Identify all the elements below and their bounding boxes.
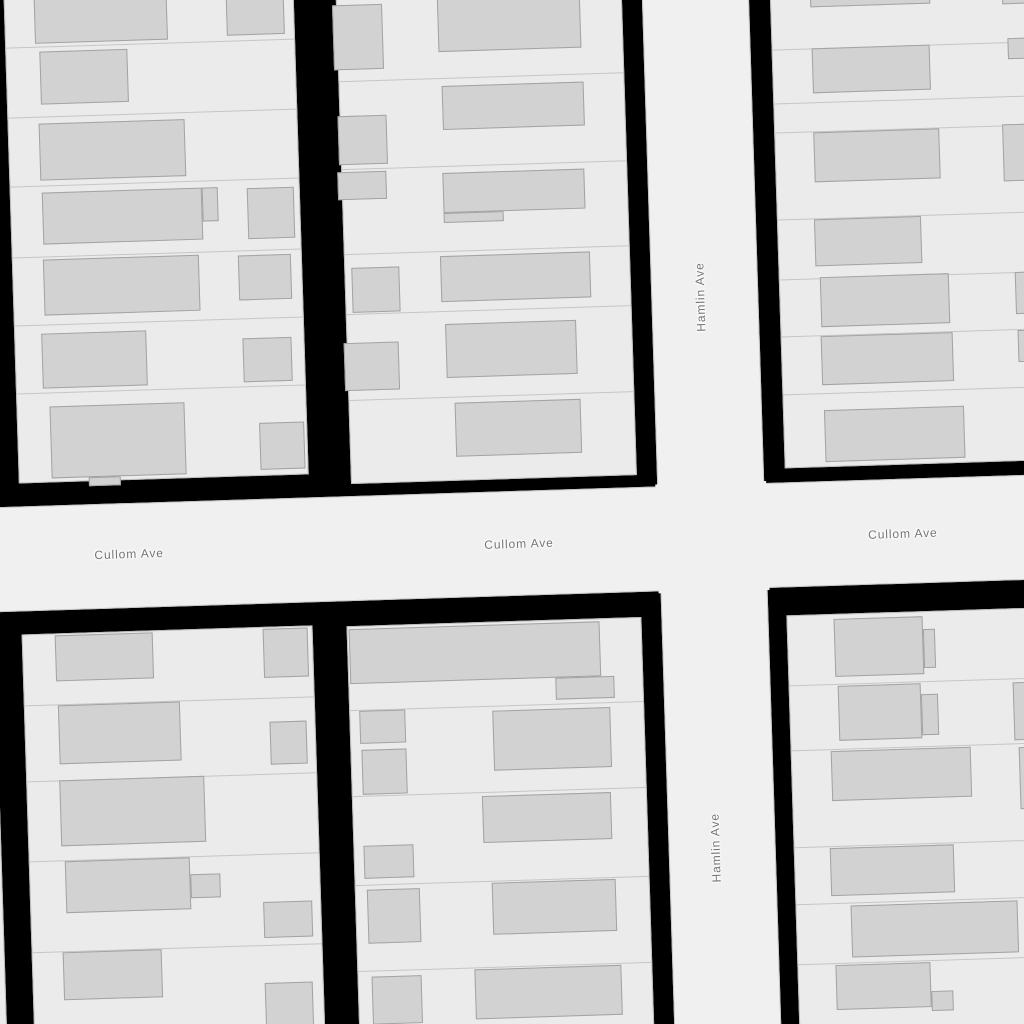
- building-footprint: [190, 873, 221, 898]
- building-footprint: [89, 476, 121, 486]
- building-footprint: [442, 169, 585, 213]
- building-footprint: [344, 341, 400, 391]
- building-footprint: [351, 266, 400, 312]
- building-footprint: [238, 254, 292, 301]
- building-footprint: [367, 888, 422, 944]
- building-footprint: [830, 844, 955, 896]
- building-footprint: [838, 683, 923, 741]
- building-footprint: [337, 171, 387, 201]
- building-footprint: [1019, 745, 1024, 809]
- building-footprint: [445, 320, 578, 378]
- building-footprint: [337, 115, 388, 166]
- building-footprint: [1002, 123, 1024, 182]
- building-footprint: [269, 721, 307, 765]
- parcel-divider-line: [783, 384, 1024, 395]
- building-footprint: [812, 45, 931, 94]
- building-footprint: [482, 792, 612, 843]
- map-canvas[interactable]: Cullom AveCullom AveCullom AveHamlin Ave…: [0, 0, 1024, 1024]
- building-footprint: [65, 857, 192, 913]
- parcel-divider-line: [8, 109, 296, 119]
- building-footprint: [39, 49, 129, 105]
- building-footprint: [834, 616, 925, 677]
- building-footprint: [824, 406, 966, 462]
- building-footprint: [59, 776, 206, 847]
- building-footprint: [455, 399, 583, 457]
- building-footprint: [49, 402, 186, 478]
- building-footprint: [1001, 0, 1024, 4]
- building-footprint: [442, 82, 585, 130]
- map-viewport[interactable]: Cullom AveCullom AveCullom AveHamlin Ave…: [0, 0, 1024, 1024]
- building-footprint: [265, 981, 315, 1024]
- building-footprint: [32, 0, 168, 44]
- building-footprint: [492, 707, 612, 771]
- building-footprint: [923, 629, 936, 668]
- parcel-divider-line: [349, 391, 633, 401]
- building-footprint: [821, 332, 954, 385]
- building-footprint: [555, 676, 615, 700]
- street-intersection: [655, 481, 769, 593]
- building-footprint: [242, 337, 292, 383]
- building-footprint: [1007, 37, 1024, 59]
- building-footprint: [820, 273, 951, 327]
- building-footprint: [1013, 680, 1024, 740]
- building-footprint: [55, 632, 154, 681]
- parcel-divider-line: [774, 93, 1024, 104]
- building-footprint: [851, 900, 1020, 957]
- building-footprint: [361, 748, 407, 794]
- building-footprint: [263, 627, 310, 677]
- building-footprint: [372, 975, 423, 1024]
- building-footprint: [39, 119, 187, 181]
- building-footprint: [831, 747, 973, 801]
- building-footprint: [1015, 271, 1024, 314]
- building-footprint: [63, 949, 163, 1000]
- building-footprint: [43, 255, 201, 316]
- building-footprint: [224, 0, 285, 36]
- building-footprint: [474, 965, 622, 1020]
- building-footprint: [247, 187, 296, 239]
- building-footprint: [41, 330, 148, 388]
- building-footprint: [835, 962, 931, 1010]
- building-footprint: [58, 702, 182, 765]
- building-footprint: [259, 421, 305, 469]
- building-footprint: [1018, 329, 1024, 362]
- building-footprint: [359, 709, 406, 743]
- building-footprint: [332, 4, 384, 71]
- building-footprint: [440, 251, 591, 302]
- street-label: Cullom Ave: [868, 526, 938, 542]
- building-footprint: [363, 844, 414, 879]
- building-footprint: [42, 188, 204, 245]
- building-footprint: [492, 879, 618, 935]
- street-label: Cullom Ave: [94, 546, 164, 562]
- building-footprint: [444, 211, 504, 223]
- building-footprint: [435, 0, 581, 52]
- building-footprint: [202, 187, 219, 221]
- building-footprint: [921, 694, 939, 736]
- building-footprint: [349, 621, 602, 684]
- street-label: Cullom Ave: [484, 536, 554, 552]
- parcel-divider-line: [15, 316, 303, 326]
- building-footprint: [814, 216, 922, 266]
- building-footprint: [263, 900, 313, 938]
- building-footprint: [813, 128, 941, 182]
- block-w-sliver: [0, 633, 10, 1024]
- street-label: Hamlin Ave: [692, 262, 708, 332]
- street-label: Hamlin Ave: [708, 813, 724, 883]
- building-footprint: [931, 990, 954, 1011]
